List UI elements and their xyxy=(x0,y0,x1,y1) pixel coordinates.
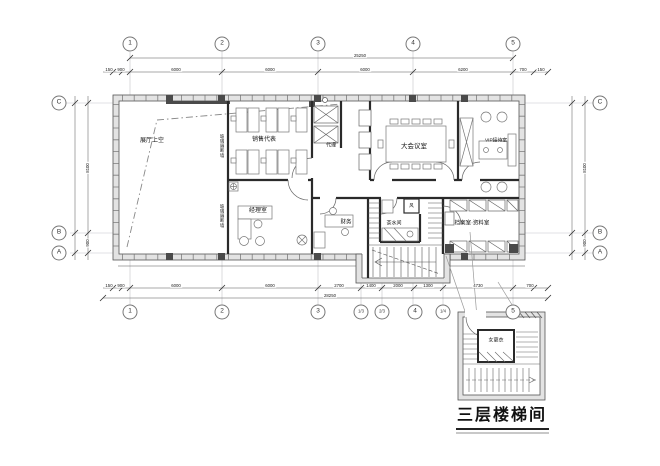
dim-left-0: 8100 xyxy=(86,162,90,174)
grid-bubble-bottom-3: 3 xyxy=(311,305,326,320)
grid-bubble-bottom-1-4: 1/4 xyxy=(436,305,451,320)
grid-bubble-top-3: 3 xyxy=(311,37,326,52)
dim-top-3: 6000 xyxy=(264,68,276,72)
dim-left-1: 900 xyxy=(86,238,90,247)
grid-bubble-bottom-2-3: 2/3 xyxy=(375,305,390,320)
dim-top-total: 25250 xyxy=(353,54,367,58)
dim-top-6: 700 xyxy=(518,68,527,72)
room-label-archive: 档案室·资料室 xyxy=(455,221,490,227)
dim-top-2: 6000 xyxy=(170,68,182,72)
dim-bottom-6: 2000 xyxy=(392,284,404,288)
dim-bottom-2: 6000 xyxy=(170,284,182,288)
dim-top-0: 150 xyxy=(104,68,113,72)
dim-bottom-8: 4730 xyxy=(472,284,484,288)
grid-bubble-bottom-1: 1 xyxy=(123,305,138,320)
dim-top-4: 6000 xyxy=(359,68,371,72)
grid-bubble-right-a: A xyxy=(593,246,608,261)
floorplan-linework xyxy=(0,0,660,466)
dim-right-0: 8100 xyxy=(583,162,587,174)
grid-bubble-bottom-4: 4 xyxy=(408,305,423,320)
grid-bubble-right-b: B xyxy=(593,226,608,241)
dim-bottom-7: 1300 xyxy=(422,284,434,288)
grid-bubble-bottom-2: 2 xyxy=(215,305,230,320)
room-label-conference: 大会议室 xyxy=(401,144,427,151)
grid-bubble-bottom-5: 5 xyxy=(506,305,521,320)
dim-bottom-total: 28250 xyxy=(323,294,337,298)
dim-top-5: 6200 xyxy=(457,68,469,72)
room-label-finance: 财务 xyxy=(340,220,351,226)
grid-bubble-top-2: 2 xyxy=(215,37,230,52)
grid-bubble-left-a: A xyxy=(52,246,67,261)
grid-bubble-top-4: 4 xyxy=(406,37,421,52)
dim-bottom-4: 2700 xyxy=(333,284,345,288)
dim-bottom-5: 1400 xyxy=(365,284,377,288)
room-label-tea: 茶水间 xyxy=(386,222,401,227)
dim-top-7: 150 xyxy=(536,68,545,72)
dim-bottom-3: 6000 xyxy=(264,284,276,288)
room-label-void: 展厅上空 xyxy=(140,138,164,144)
wall-label-glass-partition-upper: 玻璃隔断墙 xyxy=(220,134,224,158)
wall-label-glass-partition-lower: 玻璃隔断墙 xyxy=(220,204,224,228)
room-label-vip: VIP接待室 xyxy=(485,140,507,145)
floorplan-canvas: 1 2 3 4 5 1 2 3 1/3 2/3 4 1/4 5 C B A C … xyxy=(0,0,660,466)
dim-bottom-1: 900 xyxy=(116,284,125,288)
dim-bottom-0: 150 xyxy=(104,284,113,288)
room-label-agents: 代理 xyxy=(326,144,336,149)
grid-bubble-bottom-1-3: 1/3 xyxy=(354,305,369,320)
room-label-sales: 销售代表 xyxy=(252,137,276,143)
room-label-manager: 经理室 xyxy=(249,208,267,214)
dim-bottom-9: 700 xyxy=(525,284,534,288)
detail-title: 三层楼梯间 xyxy=(452,406,552,425)
dim-top-1: 900 xyxy=(116,68,125,72)
room-label-shaft: 风 xyxy=(409,204,414,209)
grid-bubble-right-c: C xyxy=(593,96,608,111)
grid-bubble-left-b: B xyxy=(52,226,67,241)
dim-right-1: 900 xyxy=(583,238,587,247)
grid-bubble-left-c: C xyxy=(52,96,67,111)
room-label-changing: 女更衣 xyxy=(488,339,503,344)
grid-bubble-top-5: 5 xyxy=(506,37,521,52)
grid-bubble-top-1: 1 xyxy=(123,37,138,52)
